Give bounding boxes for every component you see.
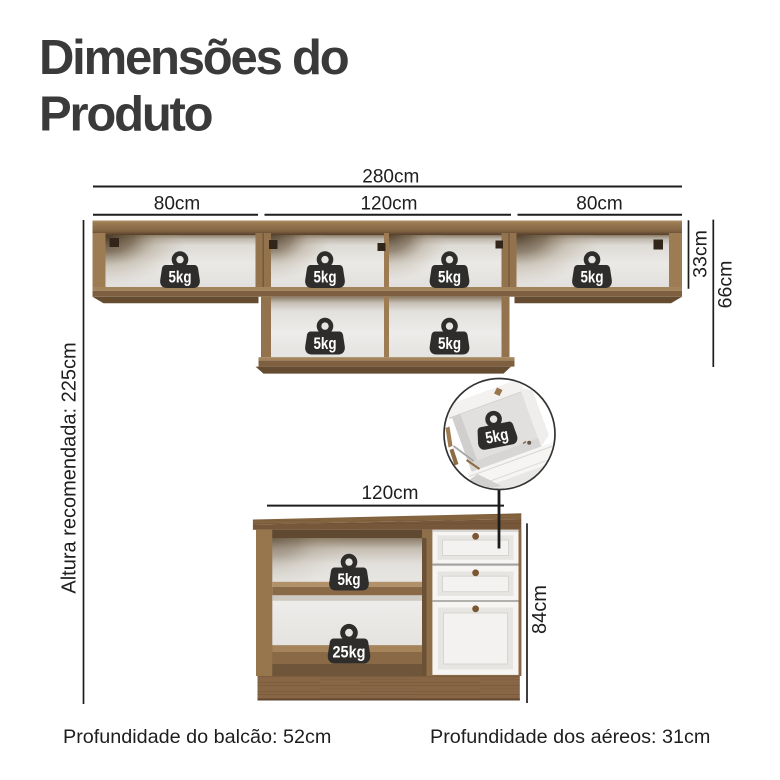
svg-text:280cm: 280cm (362, 167, 419, 188)
svg-text:80cm: 80cm (154, 194, 200, 215)
svg-text:Produto: Produto (39, 88, 213, 142)
svg-text:120cm: 120cm (360, 194, 417, 215)
svg-text:Profundidade dos aéreos: 31cm: Profundidade dos aéreos: 31cm (430, 726, 710, 748)
svg-text:Profundidade do balcão: 52cm: Profundidade do balcão: 52cm (63, 726, 331, 748)
svg-text:33cm: 33cm (690, 230, 712, 278)
svg-text:120cm: 120cm (361, 483, 418, 504)
svg-text:84cm: 84cm (529, 585, 551, 634)
svg-text:Altura recomendada: 225cm: Altura recomendada: 225cm (59, 342, 81, 593)
svg-text:66cm: 66cm (715, 261, 737, 309)
svg-text:80cm: 80cm (576, 194, 622, 215)
svg-text:Dimensões do: Dimensões do (39, 31, 349, 85)
